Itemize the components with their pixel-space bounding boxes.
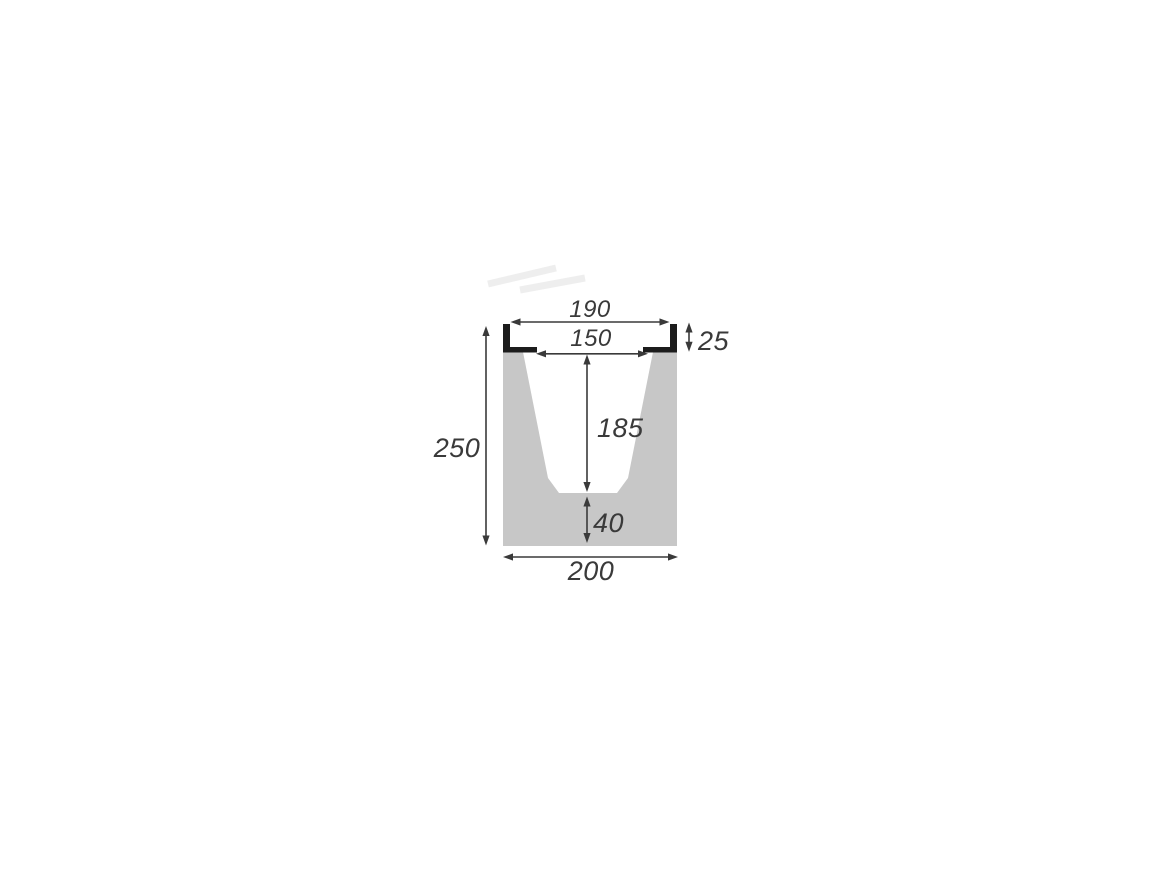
channel-cross-section-drawing: 190 150 25 250 185 [0, 0, 1170, 878]
dim-bottom-width: 200 [503, 553, 678, 586]
dim-label-40: 40 [593, 508, 624, 538]
dim-label-200: 200 [567, 556, 615, 586]
dim-rail-depth: 25 [685, 323, 729, 357]
dim-label-250: 250 [433, 433, 481, 463]
dim-total-height: 250 [433, 326, 490, 546]
left-edge-rail [503, 324, 537, 353]
dim-top-opening: 190 [511, 296, 670, 326]
scan-smudge [488, 268, 585, 290]
dim-label-25: 25 [697, 326, 730, 356]
dim-label-190: 190 [569, 296, 611, 323]
dim-label-150: 150 [570, 325, 612, 352]
diagram-canvas: 190 150 25 250 185 [0, 0, 1170, 878]
dim-label-185: 185 [597, 413, 644, 443]
right-edge-rail [643, 324, 677, 353]
